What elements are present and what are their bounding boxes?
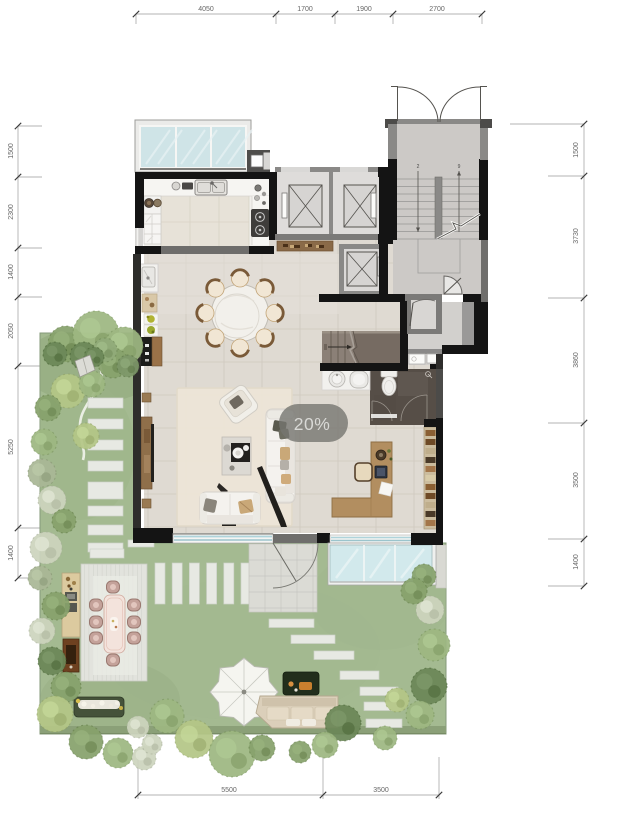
svg-text:2050: 2050 <box>8 323 15 339</box>
svg-text:3500: 3500 <box>573 472 580 488</box>
svg-text:2300: 2300 <box>8 204 15 220</box>
svg-text:2: 2 <box>417 164 420 170</box>
svg-text:1500: 1500 <box>8 143 15 159</box>
svg-text:3500: 3500 <box>373 787 389 794</box>
svg-text:4050: 4050 <box>198 6 214 13</box>
svg-text:20%: 20% <box>294 414 331 434</box>
svg-text:1400: 1400 <box>573 554 580 570</box>
svg-text:3860: 3860 <box>573 352 580 368</box>
svg-text:9: 9 <box>458 164 461 170</box>
svg-text:5250: 5250 <box>8 439 15 455</box>
svg-text:5500: 5500 <box>221 787 237 794</box>
svg-text:1400: 1400 <box>8 264 15 280</box>
svg-text:1500: 1500 <box>573 142 580 158</box>
svg-text:1400: 1400 <box>8 545 15 561</box>
svg-text:1900: 1900 <box>356 6 372 13</box>
svg-text:1700: 1700 <box>297 6 313 13</box>
svg-text:2700: 2700 <box>429 6 445 13</box>
svg-text:3730: 3730 <box>573 228 580 244</box>
